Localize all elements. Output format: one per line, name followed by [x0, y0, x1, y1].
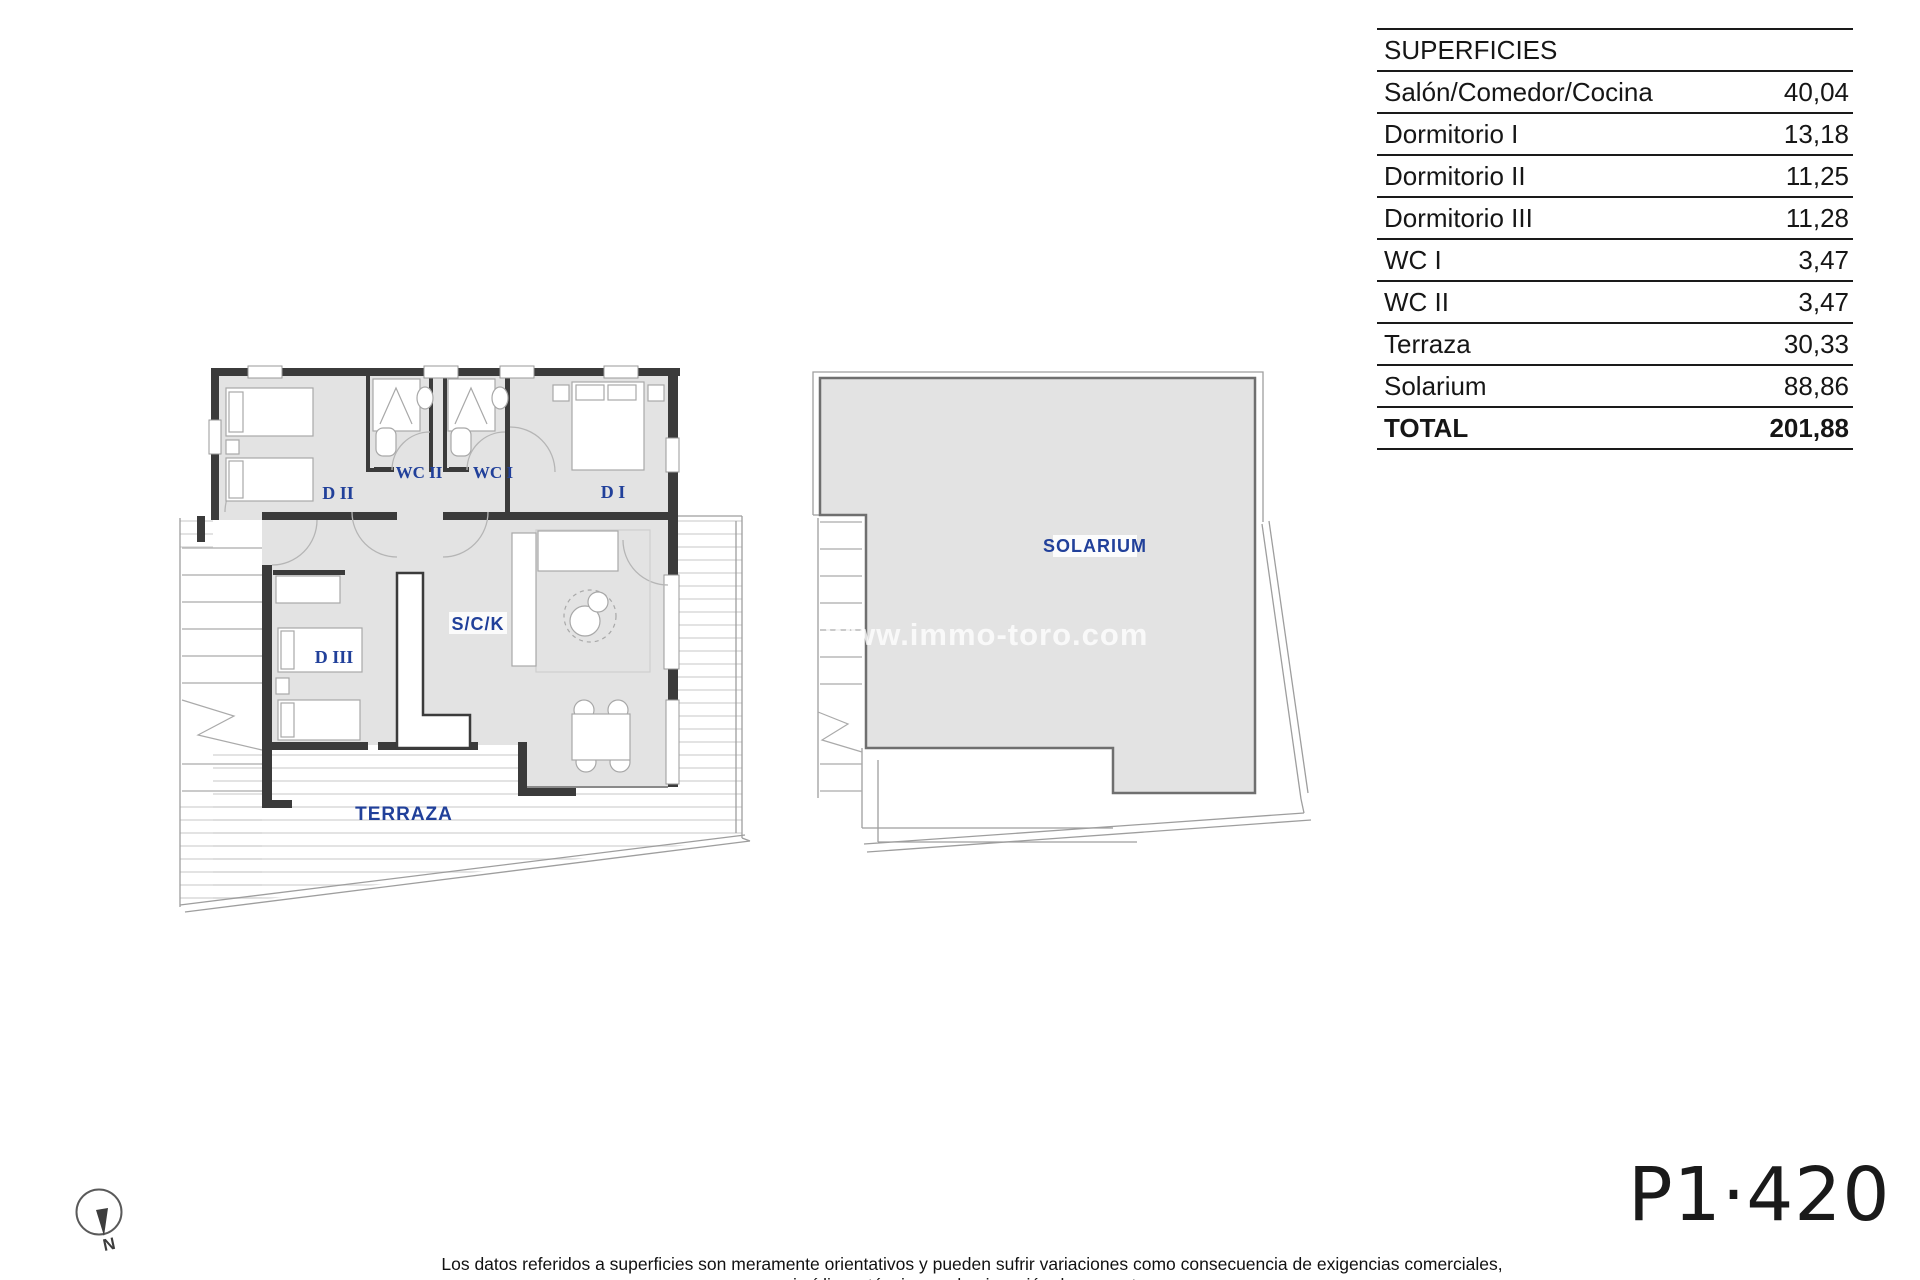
room-name: Dormitorio I [1384, 114, 1518, 154]
table-header-row: SUPERFICIES [1377, 28, 1853, 70]
table-row: WC I3,47 [1377, 238, 1853, 280]
room-label-terraza: TERRAZA [355, 804, 453, 825]
table-row: Dormitorio II11,25 [1377, 154, 1853, 196]
table-row: Terraza30,33 [1377, 322, 1853, 364]
area-value: 88,86 [1784, 366, 1849, 406]
area-value: 40,04 [1784, 72, 1849, 112]
disclaimer-text: Los datos referidos a superficies son me… [420, 1254, 1524, 1280]
solarium-floor [820, 378, 1255, 793]
room-label-d1: D I [601, 482, 626, 502]
table-row: Dormitorio III11,28 [1377, 196, 1853, 238]
floorplan-sheet: D II WC II WC I D I D III S/C/K TERRAZA [0, 0, 1920, 1280]
room-name: WC I [1384, 240, 1442, 280]
room-name: Salón/Comedor/Cocina [1384, 72, 1653, 112]
area-value: 201,88 [1769, 408, 1849, 448]
room-name: TOTAL [1384, 408, 1468, 448]
solarium-plan: SOLARIUM [813, 372, 1311, 852]
north-compass: N [77, 1190, 122, 1256]
superficies-table: SUPERFICIES Salón/Comedor/Cocina40,04Dor… [1377, 28, 1853, 450]
room-name: WC II [1384, 282, 1449, 322]
room-label-solarium: SOLARIUM [1043, 536, 1147, 556]
table-row: WC II3,47 [1377, 280, 1853, 322]
table-row: Dormitorio I13,18 [1377, 112, 1853, 154]
table-title: SUPERFICIES [1384, 30, 1557, 70]
area-value: 30,33 [1784, 324, 1849, 364]
room-name: Dormitorio II [1384, 156, 1526, 196]
apartment-plan: D II WC II WC I D I D III S/C/K TERRAZA [180, 366, 750, 912]
superficies-rows: Salón/Comedor/Cocina40,04Dormitorio I13,… [1377, 70, 1853, 450]
room-label-sck: S/C/K [451, 614, 504, 634]
north-arrow-icon [96, 1208, 108, 1236]
table-row: TOTAL201,88 [1377, 406, 1853, 450]
area-value: 3,47 [1798, 282, 1849, 322]
room-name: Terraza [1384, 324, 1471, 364]
room-name: Solarium [1384, 366, 1487, 406]
room-label-wc2: WC II [396, 463, 443, 482]
watermark-text: www.immo-toro.com [826, 617, 1148, 653]
plan-code: P1·420 [1628, 1152, 1890, 1238]
room-label-wc1: WC I [473, 463, 514, 482]
area-value: 11,25 [1786, 156, 1849, 196]
area-value: 11,28 [1786, 198, 1849, 238]
stairs-solarium [818, 522, 862, 791]
table-row: Salón/Comedor/Cocina40,04 [1377, 70, 1853, 112]
room-label-d3: D III [315, 647, 354, 667]
room-name: Dormitorio III [1384, 198, 1533, 238]
table-row: Solarium88,86 [1377, 364, 1853, 406]
area-value: 13,18 [1784, 114, 1849, 154]
area-value: 3,47 [1798, 240, 1849, 280]
room-label-d2: D II [322, 483, 354, 503]
compass-north-label: N [101, 1234, 117, 1255]
